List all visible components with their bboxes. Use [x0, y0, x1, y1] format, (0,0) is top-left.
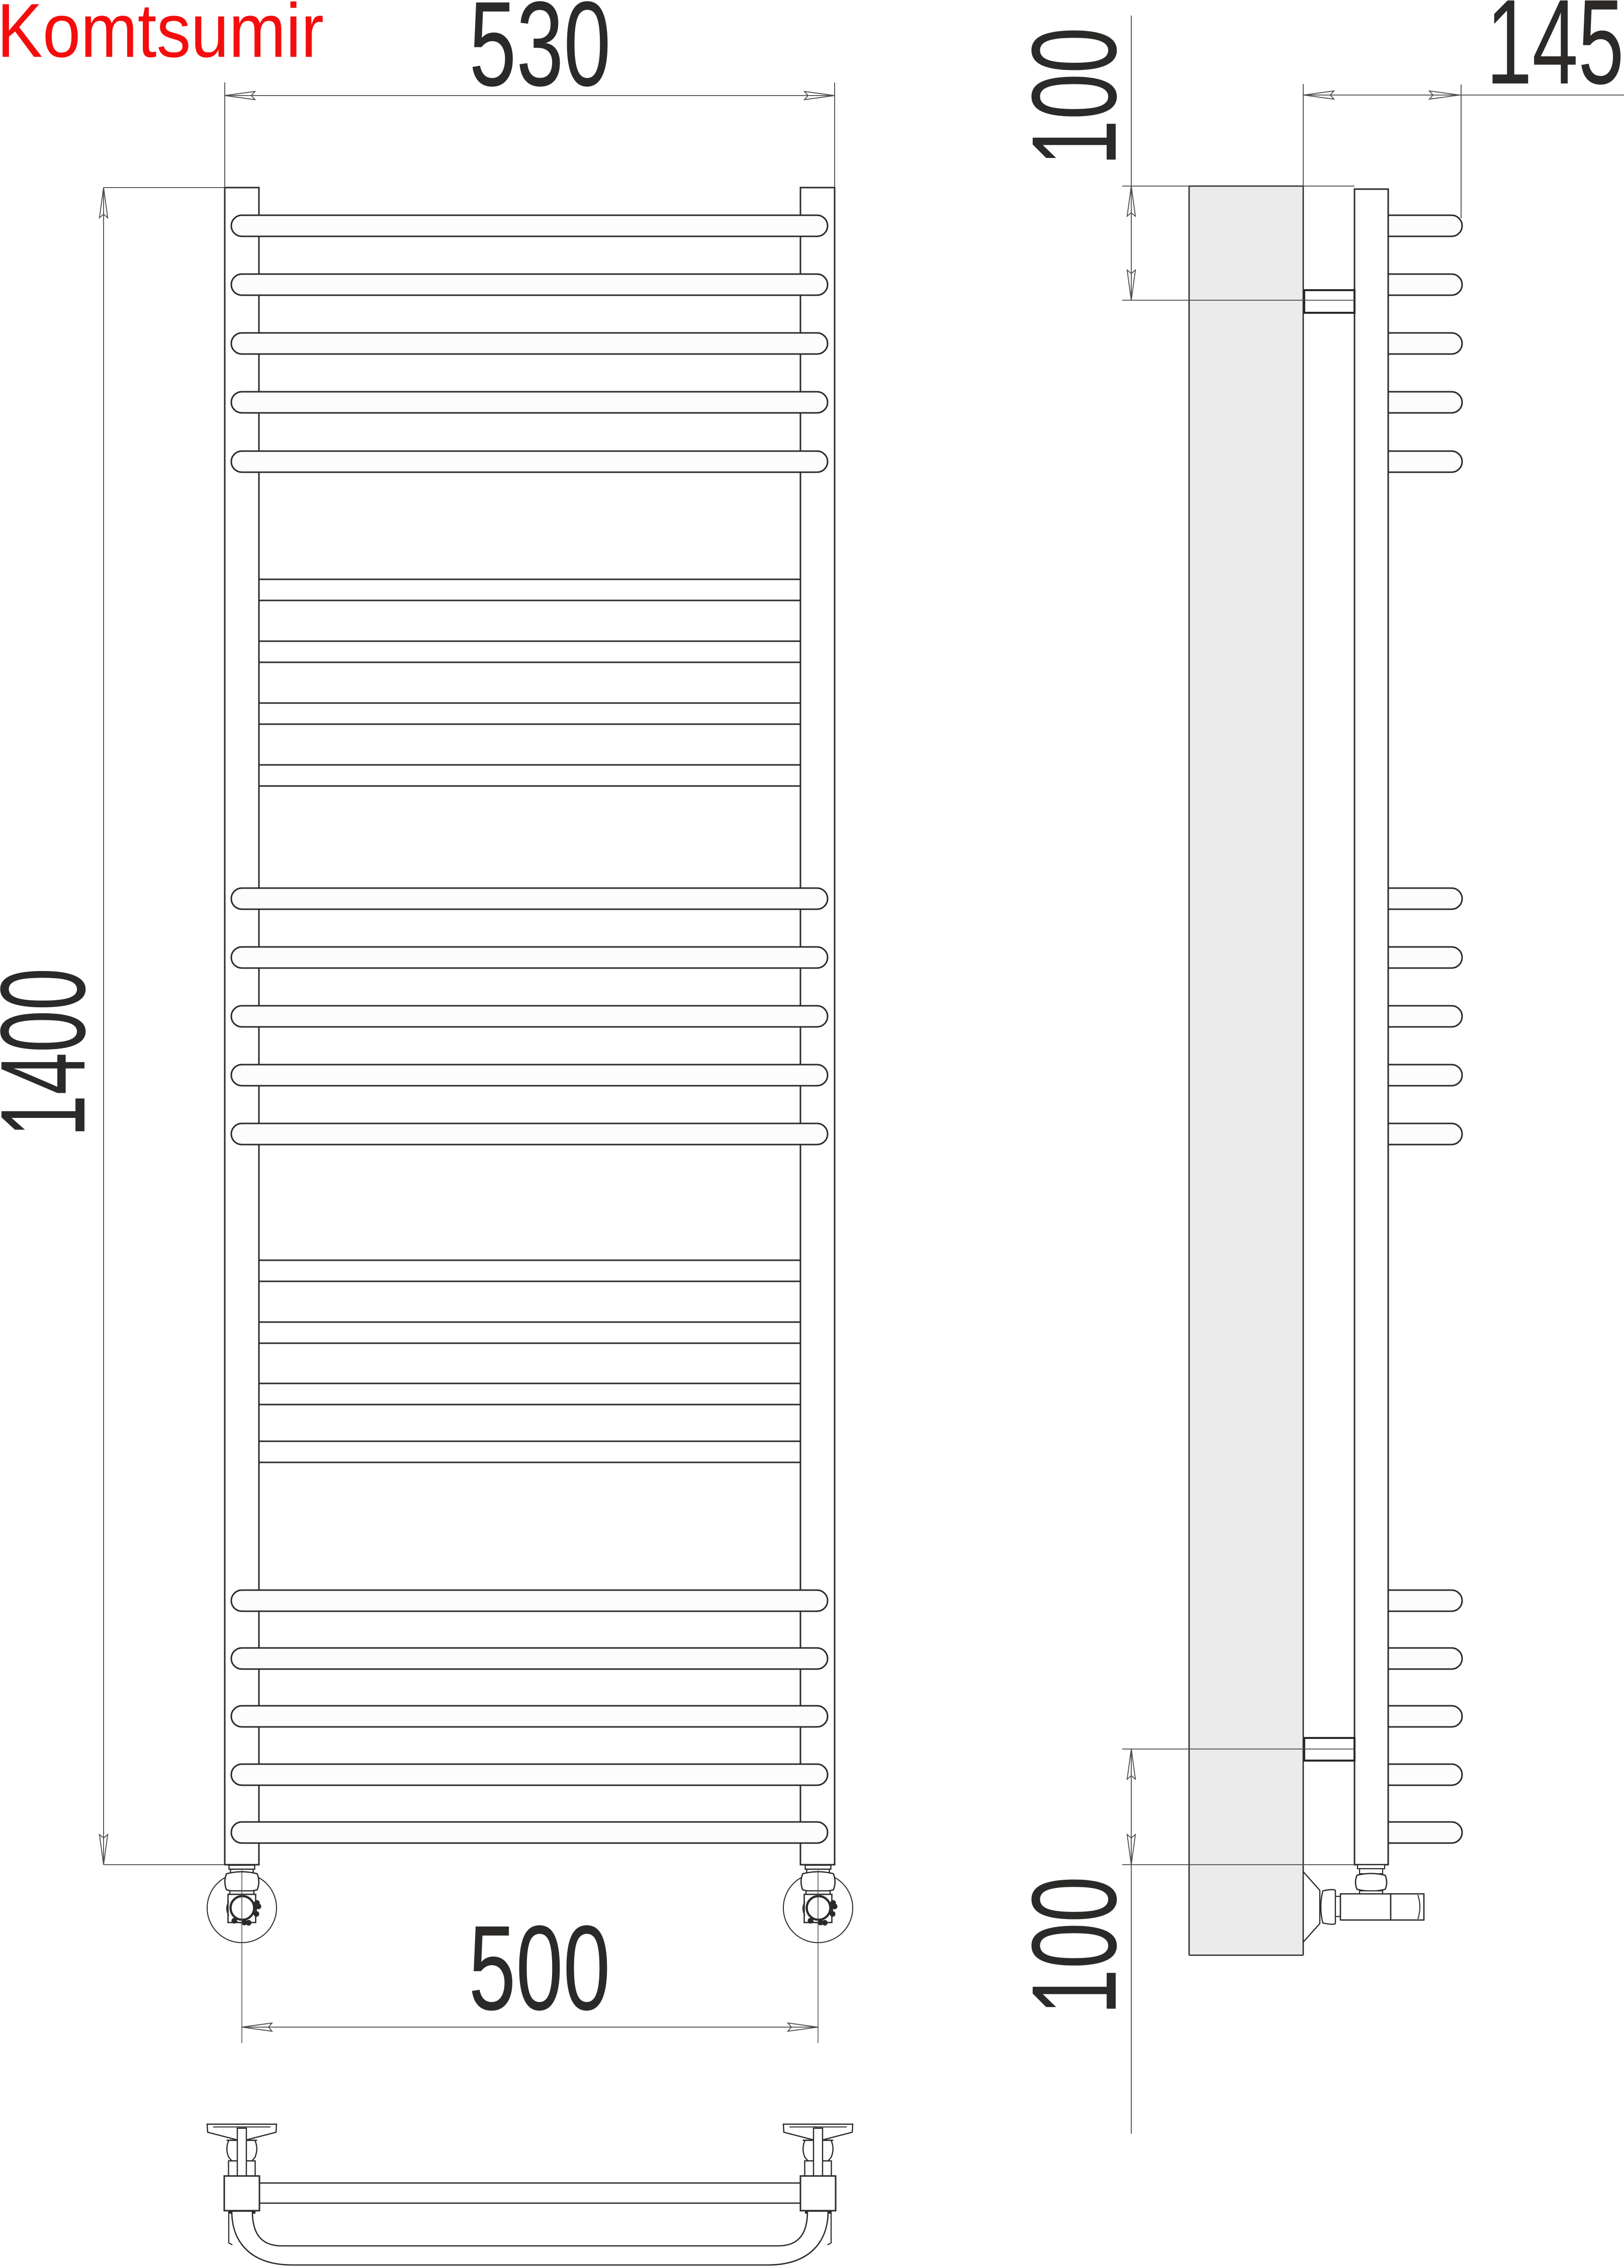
svg-text:100: 100 [1007, 27, 1141, 166]
svg-text:Komtsumir: Komtsumir [0, 0, 324, 73]
svg-text:100: 100 [1007, 1876, 1141, 2015]
svg-text:500: 500 [469, 1900, 610, 2035]
svg-text:530: 530 [469, 0, 611, 111]
svg-text:1400: 1400 [0, 968, 110, 1137]
svg-text:145: 145 [1486, 0, 1624, 109]
